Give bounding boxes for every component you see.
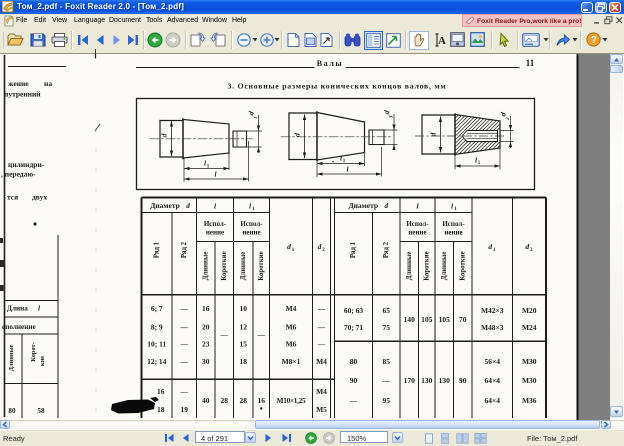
svg-text:—: — [220,330,229,339]
svg-text:—: — [180,387,189,396]
svg-text:8; 9: 8; 9 [151,323,163,332]
svg-text:80: 80 [350,357,358,366]
svg-text:16: 16 [157,387,165,396]
svg-text:Диаметр: Диаметр [348,201,378,210]
svg-text:105: 105 [421,315,433,324]
svg-text:19: 19 [181,405,189,414]
svg-text:на: на [44,79,52,88]
svg-text:нение: нение [408,229,426,237]
svg-text:18: 18 [240,357,248,366]
svg-text:M10×1,25: M10×1,25 [277,396,306,405]
svg-text:?: ? [591,35,597,46]
svg-text:M30: M30 [522,376,537,385]
svg-text:—: — [382,376,391,385]
svg-text:12; 14: 12; 14 [147,357,167,366]
svg-text:Короткие: Короткие [258,251,265,280]
svg-text:M4: M4 [316,387,327,396]
svg-text:M24: M24 [522,323,537,332]
svg-text:130: 130 [421,376,433,385]
svg-text:Ряд 1: Ряд 1 [153,241,160,258]
svg-text:Валы: Валы [317,59,344,68]
svg-text:28: 28 [221,396,229,405]
svg-text:10: 10 [240,304,248,313]
svg-text:M30: M30 [522,357,537,366]
svg-text:64×4: 64×4 [484,396,500,405]
svg-text:A: A [438,35,446,47]
svg-text:Длинные: Длинные [8,344,15,371]
svg-text:64×4: 64×4 [484,376,500,385]
svg-text:d: d [293,133,302,137]
svg-text:10; 11: 10; 11 [147,340,166,349]
svg-text:Корот-: Корот- [30,342,37,361]
svg-text:M42×3: M42×3 [481,306,504,315]
svg-text:d: d [186,202,190,210]
svg-text:85: 85 [383,357,391,366]
svg-text:170: 170 [404,376,416,385]
svg-text:56×4: 56×4 [484,357,500,366]
svg-text:130: 130 [439,376,451,385]
svg-text:Короткие: Короткие [423,251,430,280]
svg-text:Короткие: Короткие [459,251,466,280]
svg-text:16: 16 [258,396,266,405]
svg-text:d: d [160,133,169,137]
svg-text:60; 63: 60; 63 [344,306,364,315]
svg-text:d: d [488,242,492,251]
svg-text:l: l [38,305,40,313]
svg-text:28: 28 [240,396,248,405]
svg-text:—: — [317,304,326,313]
svg-text:—: — [180,304,189,313]
svg-text:140: 140 [404,315,416,324]
svg-text:18: 18 [157,405,165,414]
svg-text:105: 105 [439,315,451,324]
svg-text:d: d [287,242,291,251]
svg-text:кие: кие [39,356,46,366]
svg-text:70; 71: 70; 71 [344,323,364,332]
svg-text:—: — [180,323,189,332]
svg-text:70: 70 [459,315,467,324]
svg-text:80: 80 [8,407,16,415]
svg-text:Длинные: Длинные [240,252,247,281]
svg-text:95: 95 [383,396,391,405]
svg-text:нение: нение [242,229,260,237]
svg-text:90: 90 [459,376,467,385]
svg-text:58: 58 [37,407,45,415]
svg-text:d: d [525,242,529,251]
svg-text:сполнение: сполнение [2,323,36,331]
svg-text:12: 12 [240,323,248,332]
svg-text:—: — [257,330,266,339]
svg-text:M8×1: M8×1 [282,357,301,366]
svg-text:Ряд 2: Ряд 2 [181,241,188,258]
svg-text:11: 11 [526,58,535,68]
svg-text:Испол-: Испол- [406,220,429,228]
svg-text:—: — [180,340,189,349]
svg-text:Испол-: Испол- [204,220,227,228]
svg-text:M20: M20 [522,306,537,315]
svg-text:75: 75 [383,323,391,332]
svg-text:жение: жение [8,79,29,88]
svg-text:Испол-: Испол- [240,220,263,228]
svg-text:цилиндри-: цилиндри- [8,160,45,169]
svg-text:M6: M6 [286,323,297,332]
svg-text:d: d [318,242,322,251]
svg-text:Длинные: Длинные [202,252,209,281]
svg-text:нение: нение [206,229,224,237]
svg-text:Ряд 2: Ряд 2 [383,241,390,258]
svg-text:40: 40 [202,396,210,405]
svg-text:—: — [349,396,358,405]
svg-text:15: 15 [240,340,248,349]
svg-text:Короткие: Короткие [221,251,228,280]
svg-text:M36: M36 [522,396,537,405]
svg-text:M4: M4 [316,357,327,366]
svg-text:23: 23 [202,340,210,349]
svg-text:нутренний: нутренний [4,90,41,99]
svg-text:двух: двух [32,193,47,202]
svg-text:Диаметр: Диаметр [150,201,180,210]
svg-text:Длина: Длина [7,305,28,313]
svg-text:Длинные: Длинные [406,252,413,281]
svg-text:—: — [317,323,326,332]
svg-text:16: 16 [202,304,210,313]
svg-text:—: — [180,357,189,366]
svg-text:M48×3: M48×3 [481,323,504,332]
svg-text:6; 7: 6; 7 [151,304,163,313]
svg-text:d: d [384,202,388,210]
svg-text:Ряд 1: Ряд 1 [350,241,357,258]
svg-text:M5: M5 [316,405,327,414]
svg-text:d: d [429,132,438,136]
svg-text:M4: M4 [286,304,297,313]
svg-text:, передаю-: , передаю- [1,170,36,179]
svg-text:90: 90 [350,376,358,385]
svg-text:нение: нение [444,229,462,237]
svg-text:20: 20 [202,323,210,332]
svg-text:30: 30 [202,357,210,366]
svg-text:—: — [317,340,326,349]
svg-text:Длинные: Длинные [441,252,448,281]
svg-text:тся: тся [7,193,18,202]
svg-text:Испол-: Испол- [442,220,465,228]
svg-text:65: 65 [383,306,391,315]
svg-text:M6: M6 [286,340,297,349]
svg-text:3. Основные размеры конических: 3. Основные размеры конических концов ва… [227,82,446,91]
